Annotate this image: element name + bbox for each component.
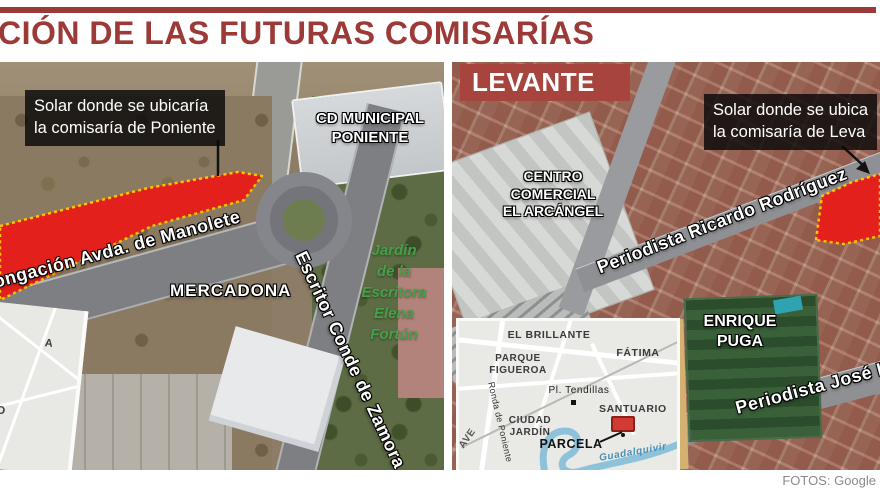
supermarket-label: MERCADONA: [170, 281, 291, 301]
mall-label-line: EL ARCÁNGEL: [492, 203, 614, 221]
pitch-label: ENRIQUE PUGA: [692, 312, 788, 352]
mall-label: CENTRO COMERCIAL EL ARCÁNGEL: [492, 168, 614, 221]
inset-label-santuario: SANTUARIO: [599, 403, 665, 415]
pitch-label-line: PUGA: [692, 332, 788, 352]
inset-label-line: FIGUEROA: [483, 365, 553, 377]
park-label-line: Escritora: [350, 282, 438, 303]
inset-label-parcela: PARCELA: [535, 437, 607, 451]
callout-line: la comisaría de Poniente: [34, 118, 216, 140]
panel-levante-aerial: LEVANTE Solar donde se ubica la comisarí…: [452, 62, 880, 470]
inset-label-line: CIUDAD: [501, 415, 559, 427]
callout-line: Solar donde se ubicaría: [34, 96, 216, 118]
inset-fragment-label: RIO: [0, 403, 6, 417]
park-label-line: Jardín: [350, 240, 438, 261]
park-label-line: de la: [350, 261, 438, 282]
park-label-line: Elena: [350, 303, 438, 324]
roundabout: [270, 186, 338, 254]
stadium-label-line: CD MUNICIPAL: [298, 110, 442, 129]
stadium-label: CD MUNICIPAL PONIENTE: [298, 110, 442, 148]
inset-label-brillante: EL BRILLANTE: [493, 329, 605, 341]
photo-credit: FOTOS: Google: [740, 473, 876, 488]
callout-line: Solar donde se ubica: [713, 100, 868, 122]
inset-locator-map: EL BRILLANTE FÁTIMA PARQUE FIGUEROA Pl. …: [456, 318, 680, 470]
top-rule: [0, 7, 876, 13]
inset-label-parque-figueroa: PARQUE FIGUEROA: [483, 353, 553, 376]
inset-tendillas-marker: [571, 400, 576, 405]
inset-label-line: PARQUE: [483, 353, 553, 365]
inset-road: [0, 310, 87, 386]
panel-header-levante: LEVANTE: [460, 64, 630, 101]
panel-poniente-aerial: A RIO Solar donde se ubicaría la comisar…: [0, 62, 444, 470]
mall-label-line: CENTRO: [492, 168, 614, 186]
page-title: CIÓN DE LAS FUTURAS COMISARÍAS: [0, 15, 594, 52]
inset-label-ciudad-jardin: CIUDAD JARDÍN: [501, 415, 559, 438]
inset-parcel-marker: [611, 416, 635, 432]
callout-levante: Solar donde se ubica la comisaría de Lev…: [704, 94, 877, 150]
pitch-label-line: ENRIQUE: [692, 312, 788, 332]
park-label: Jardín de la Escritora Elena Fortún: [350, 240, 438, 345]
inset-marker-dot: [621, 433, 625, 437]
infographic-page: CIÓN DE LAS FUTURAS COMISARÍAS A RIO: [0, 0, 880, 495]
inset-road: [0, 382, 88, 414]
mall-label-line: COMERCIAL: [492, 186, 614, 204]
inset-label-tendillas: Pl. Tendillas: [541, 385, 617, 397]
stadium-label-line: PONIENTE: [298, 129, 442, 148]
callout-poniente: Solar donde se ubicaría la comisaría de …: [25, 90, 225, 146]
callout-line: la comisaría de Leva: [713, 122, 868, 144]
inset-fragment-label: A: [44, 337, 53, 350]
inset-label-fatima: FÁTIMA: [609, 347, 667, 359]
park-label-line: Fortún: [350, 324, 438, 345]
